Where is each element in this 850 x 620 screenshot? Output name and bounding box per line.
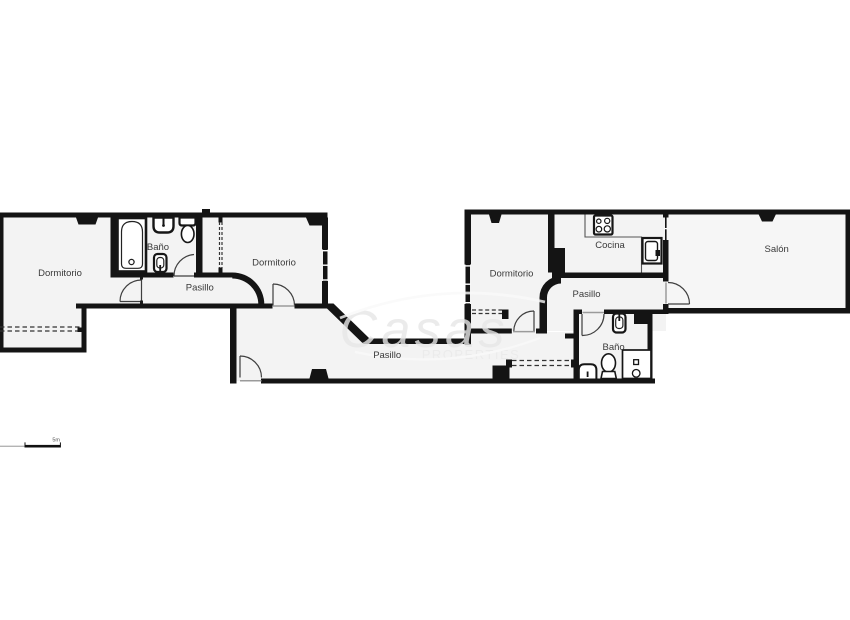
svg-text:Dormitorio: Dormitorio: [38, 268, 82, 279]
svg-text:Dormitorio: Dormitorio: [490, 269, 534, 280]
svg-text:Dormitorio: Dormitorio: [252, 258, 296, 269]
svg-text:Baño: Baño: [603, 342, 625, 353]
svg-text:Baño: Baño: [147, 242, 169, 253]
svg-text:Pasillo: Pasillo: [186, 282, 214, 293]
svg-text:5m: 5m: [52, 438, 60, 444]
svg-text:Pasillo: Pasillo: [373, 350, 401, 361]
svg-text:Cocina: Cocina: [595, 240, 625, 251]
svg-text:Salón: Salón: [765, 244, 789, 255]
svg-text:Pasillo: Pasillo: [573, 289, 601, 300]
